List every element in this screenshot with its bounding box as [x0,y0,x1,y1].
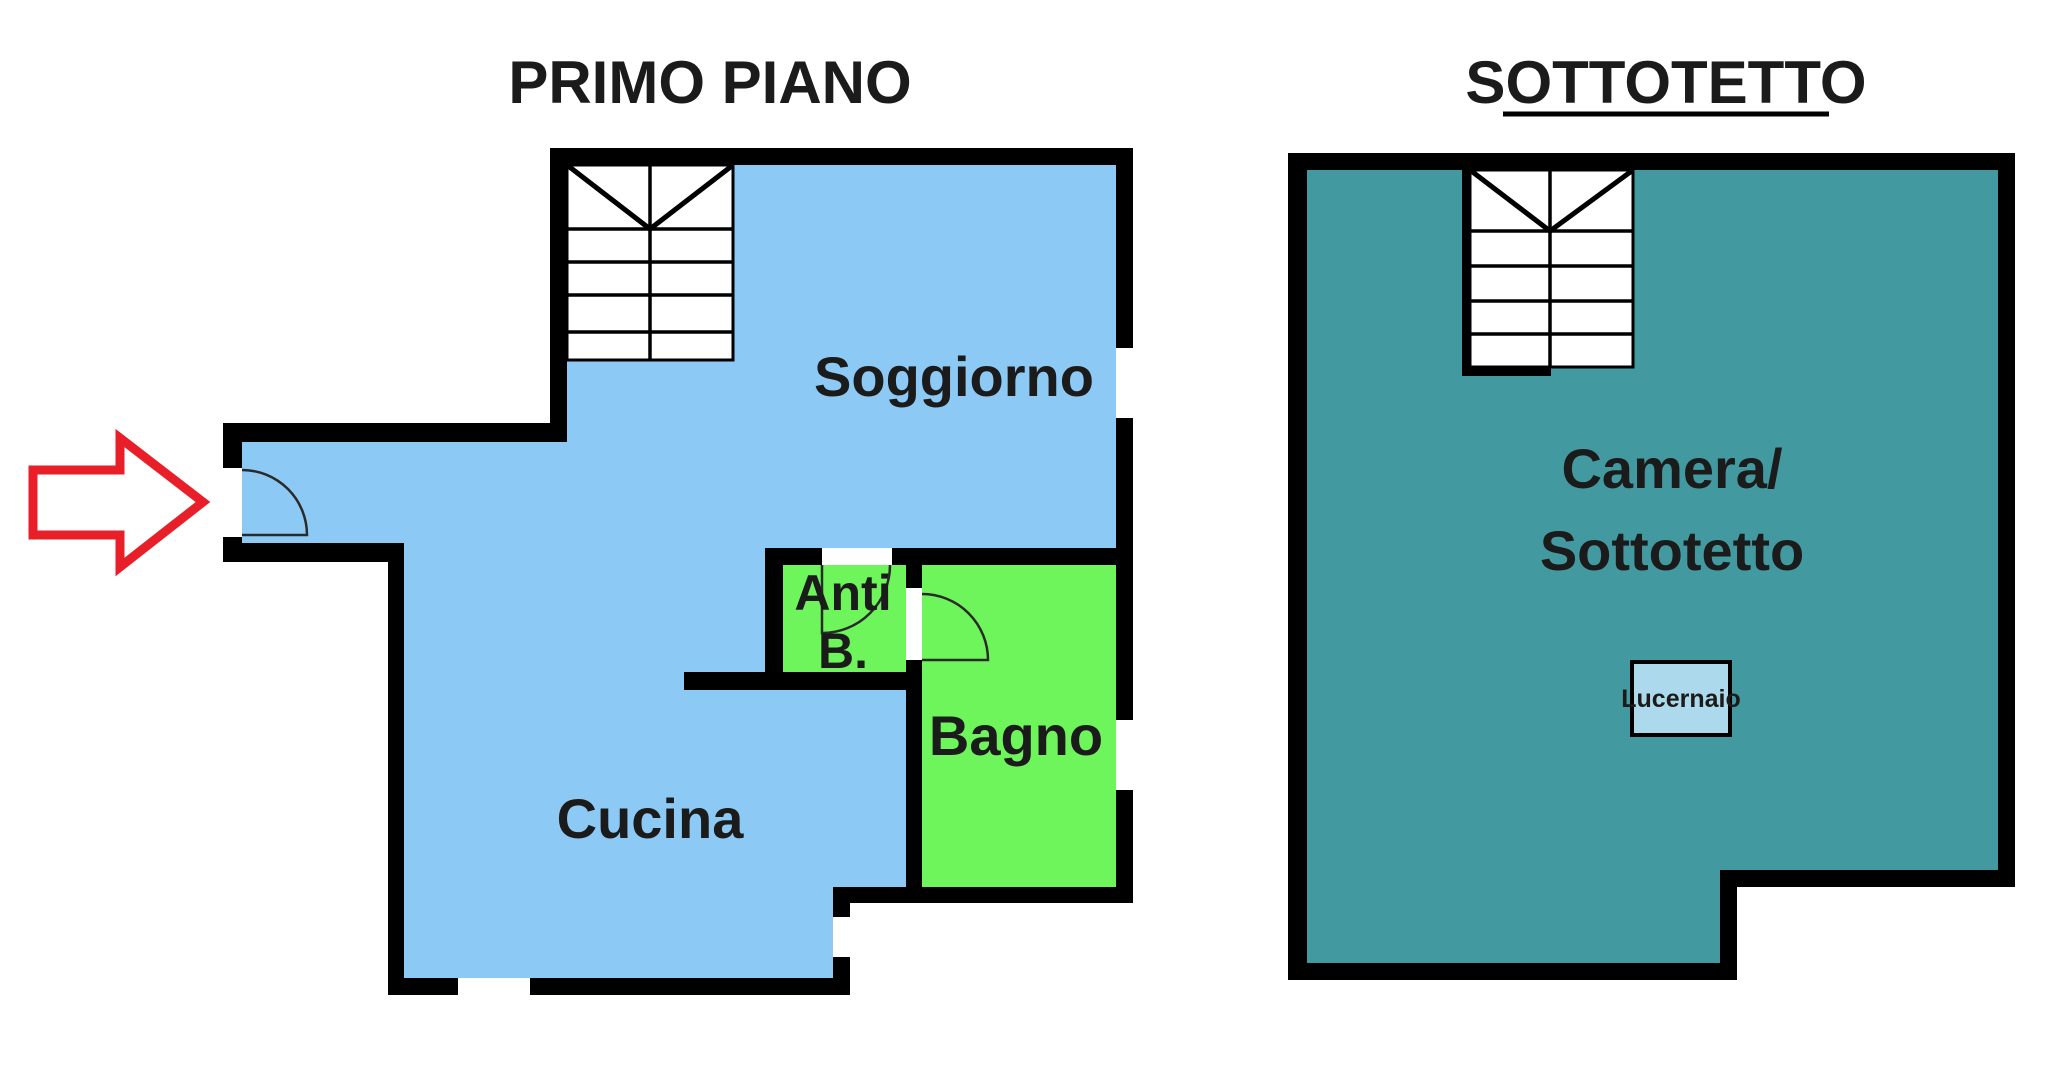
floor-plan-sottotetto: Camera/ Sottotetto Lucernaio [1288,153,2015,980]
entrance-arrow-icon [33,438,203,567]
floor-plans-svg: PRIMO PIANO SOTTOTETTO [0,0,2067,1085]
label-anti-b-line1: Anti [794,565,891,621]
cucina-bottom-window [458,978,530,995]
title-primo-piano: PRIMO PIANO [508,49,911,116]
floor-plan-primo-piano: Soggiorno Cucina Bagno Anti B. [223,148,1133,995]
label-camera-line1: Camera/ [1561,437,1782,500]
label-bagno: Bagno [929,704,1103,767]
title-sottotetto: SOTTOTETTO [1465,49,1866,116]
soggiorno-window [1116,348,1133,418]
label-lucernaio: Lucernaio [1621,685,1740,713]
label-camera-line2: Sottotetto [1540,519,1804,582]
label-cucina: Cucina [557,787,745,850]
anti-b-door-gap [822,548,892,565]
floor-plan-page: PRIMO PIANO SOTTOTETTO [0,0,2067,1085]
label-anti-b-line2: B. [818,623,868,679]
stairs-sottotetto [1462,170,1633,376]
label-soggiorno: Soggiorno [814,345,1094,408]
stairs-primo-piano [567,165,733,360]
bagno-door-gap [906,588,922,660]
bagno-window [1116,720,1133,790]
cucina-side-window [833,917,850,957]
entry-door-gap [223,468,242,537]
